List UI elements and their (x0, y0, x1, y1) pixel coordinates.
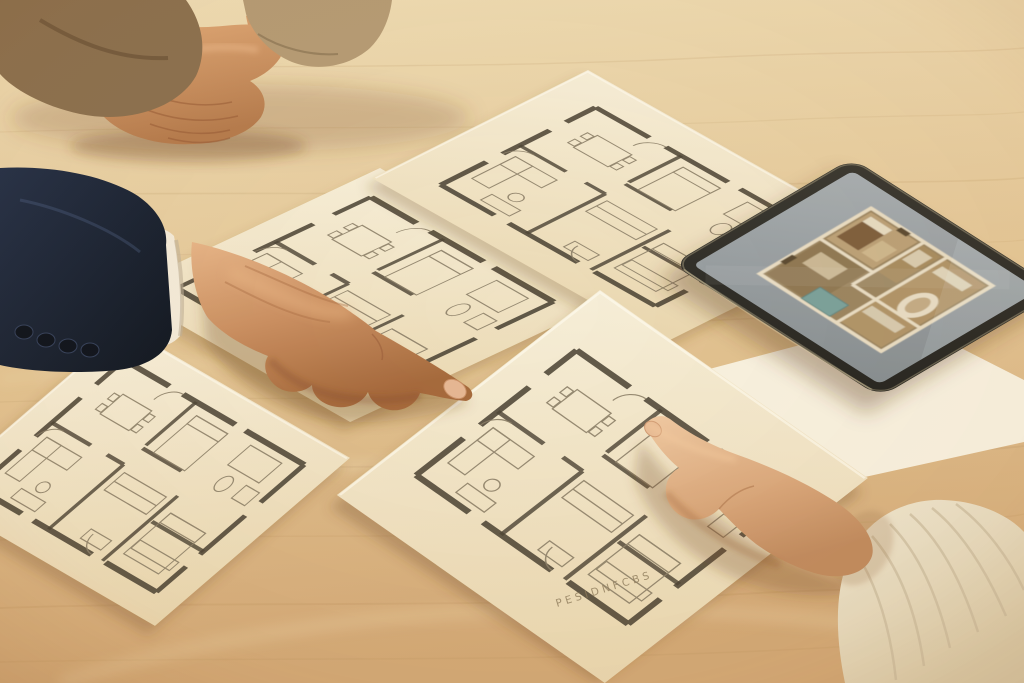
vignette (0, 0, 1024, 683)
photo-floorplan-meeting: PESIDNFCBS (0, 0, 1024, 683)
